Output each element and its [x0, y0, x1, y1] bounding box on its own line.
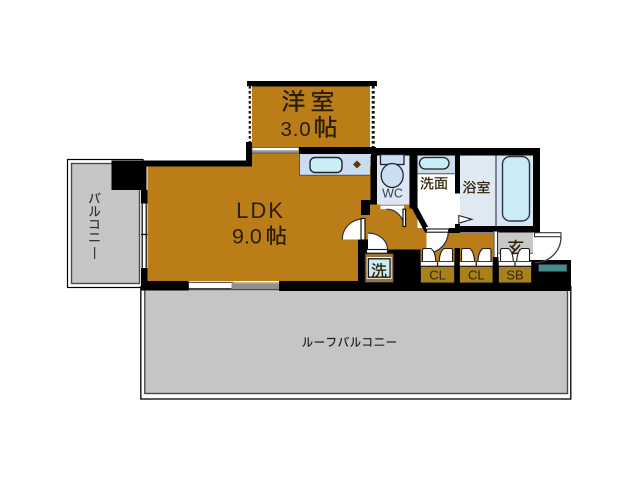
- svg-text:3.0: 3.0: [281, 118, 312, 141]
- svg-text:LDK: LDK: [236, 198, 285, 223]
- svg-text:SB: SB: [506, 267, 523, 282]
- svg-text:9.0: 9.0: [232, 225, 262, 249]
- svg-text:CL: CL: [429, 267, 446, 282]
- svg-text:WC: WC: [382, 187, 403, 201]
- svg-text:CL: CL: [468, 267, 485, 282]
